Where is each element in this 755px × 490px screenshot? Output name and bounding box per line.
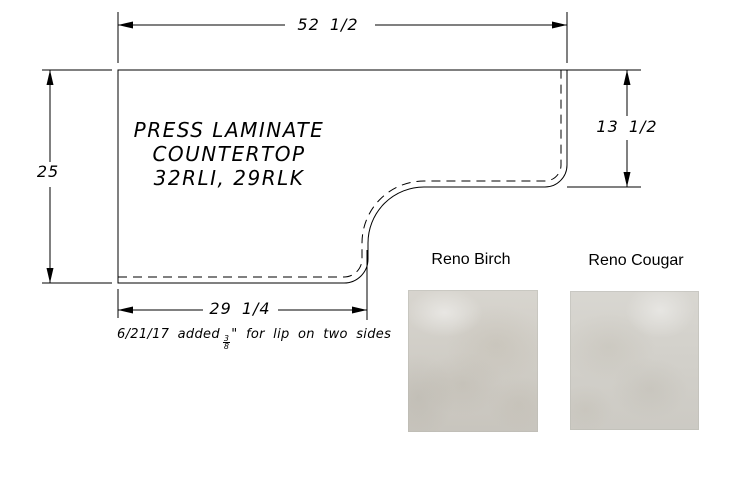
arrowhead-right (552, 22, 567, 29)
swatch-image-reno-birch (408, 290, 538, 432)
revision-note-suffix: " for lip on two sides (231, 327, 391, 342)
revision-note: 6/21/17 added38" for lip on two sides (117, 328, 391, 350)
dimension-text-top: 52 1/2 (295, 17, 360, 33)
dimension-text-bottom: 29 1/4 (207, 301, 272, 317)
dimension-text-left: 25 (35, 164, 61, 180)
fraction-denominator: 8 (223, 343, 230, 350)
arrowhead-down (47, 268, 54, 283)
part-label-line-1: PRESS LAMINATE (134, 118, 325, 142)
swatch-label-reno-cougar: Reno Cougar (588, 252, 683, 270)
part-label-line-2: COUNTERTOP (134, 142, 325, 166)
swatch-label-reno-birch: Reno Birch (431, 251, 510, 269)
arrowhead-up (624, 70, 631, 85)
arrowhead-up (47, 70, 54, 85)
fraction-three-eighths: 38 (223, 335, 230, 350)
dimension-text-right: 13 1/2 (594, 119, 659, 135)
part-label-line-3: 32RLI, 29RLK (134, 166, 325, 190)
arrowhead-down (624, 172, 631, 187)
arrowhead-left (118, 307, 133, 314)
arrowhead-left (118, 22, 133, 29)
countertop-drawing-page: 52 1/2 25 13 1/2 29 1/4 PRESS LAMINATE C… (0, 0, 755, 490)
part-label: PRESS LAMINATE COUNTERTOP 32RLI, 29RLK (134, 118, 325, 190)
revision-note-prefix: 6/21/17 added (117, 327, 220, 342)
swatch-image-reno-cougar (570, 291, 699, 430)
arrowhead-right (352, 307, 367, 314)
